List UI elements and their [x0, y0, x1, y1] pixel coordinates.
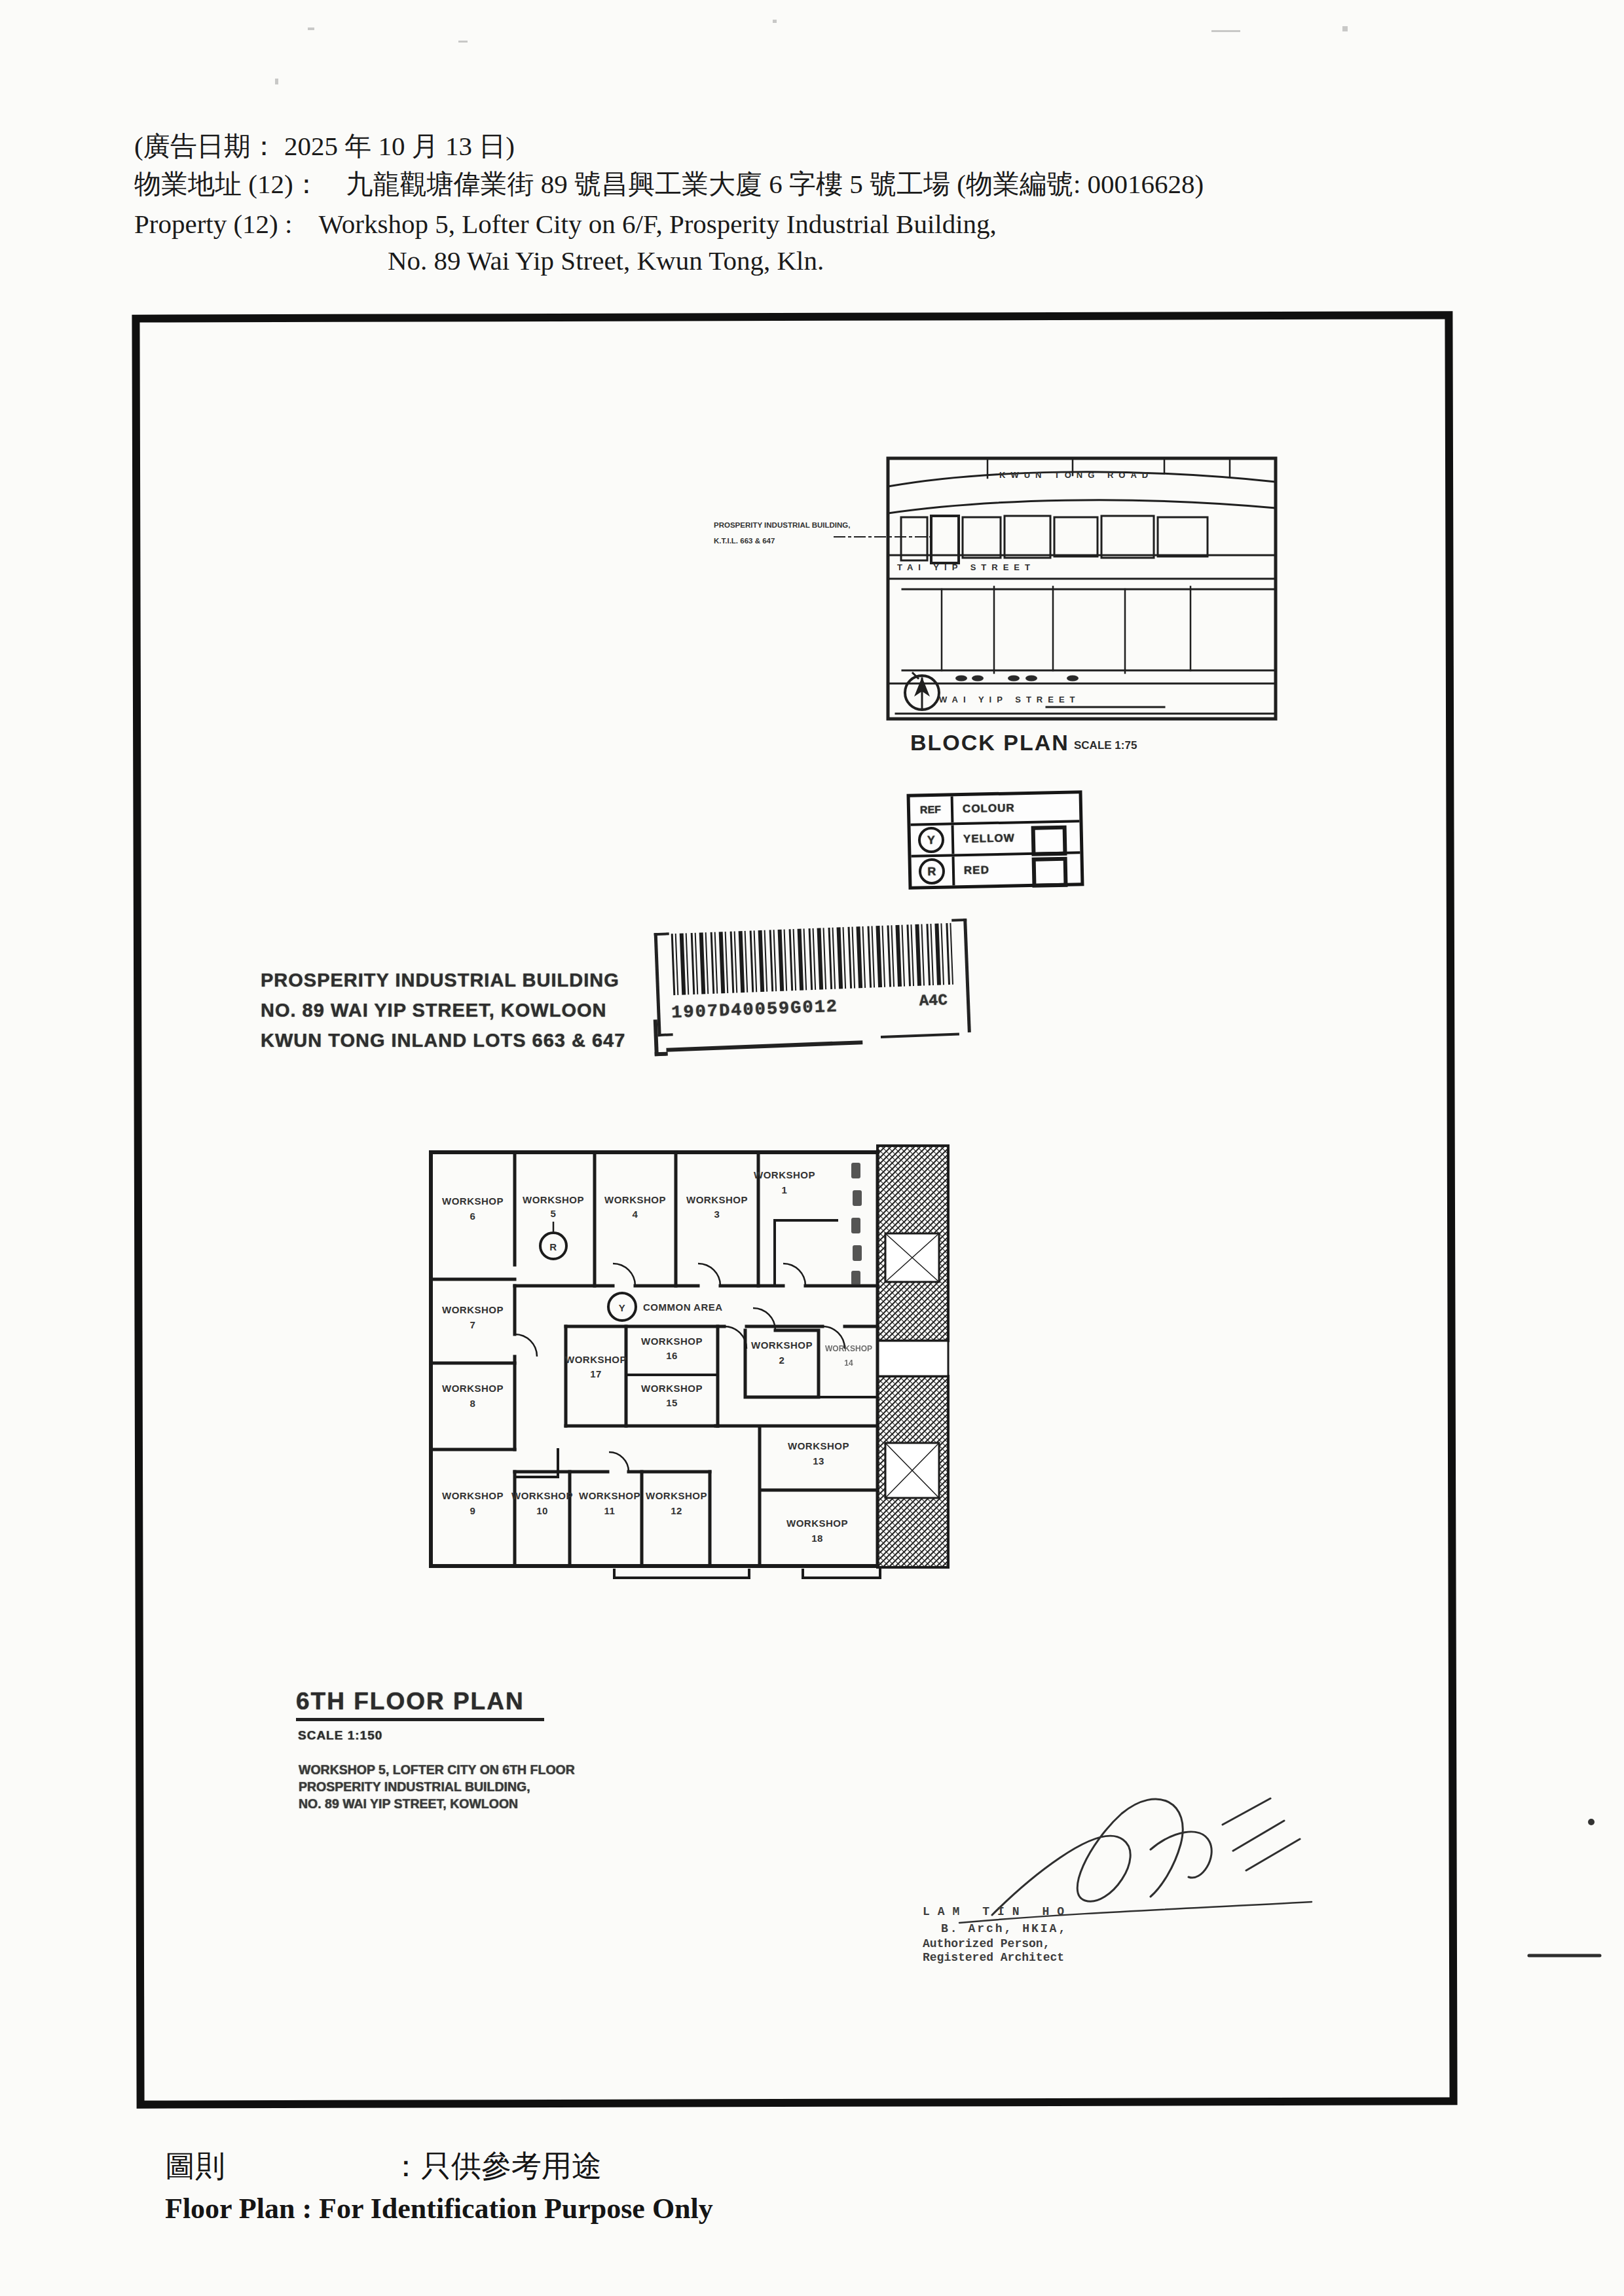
red-marker: R [540, 1222, 566, 1259]
workshop-14-number: 14 [844, 1358, 853, 1368]
workshop-14-label: WORKSHOP [825, 1344, 872, 1353]
signatory-name: LAM TIN HO [923, 1905, 1072, 1918]
signatory-qualification: B. Arch, HKIA, [941, 1922, 1067, 1935]
street-label-wai-yip-street: WAI YIP STREET [939, 695, 1080, 704]
floor-plan-scale: SCALE 1:150 [298, 1728, 382, 1743]
workshop-7-label: WORKSHOP [442, 1304, 504, 1315]
legend-row-yellow: Y YELLOW [910, 820, 1080, 854]
scan-speck [1342, 26, 1348, 31]
property-address-cn: 物業地址 (12)：九龍觀塘偉業街 89 號昌興工業大廈 6 字樓 5 號工場 … [134, 166, 1204, 202]
workshop-3-number: 3 [714, 1209, 720, 1220]
footer-cn-value: 只供參考用途 [421, 2149, 602, 2183]
room-labels: WORKSHOP 6 WORKSHOP 5 WORKSHOP 4 WORKSHO… [442, 1169, 872, 1544]
workshop-9-number: 9 [470, 1505, 476, 1516]
site-line-1: PROSPERITY INDUSTRIAL BUILDING [261, 965, 625, 995]
workshop-6-label: WORKSHOP [442, 1195, 504, 1207]
yellow-ref-circle: Y [918, 827, 945, 854]
block-plan-scale: SCALE 1:75 [1074, 739, 1137, 752]
yellow-marker: Y COMMON AREA [608, 1293, 723, 1321]
signatory-role-2: Registered Architect [923, 1951, 1064, 1964]
workshop-16-number: 16 [666, 1350, 678, 1361]
scan-speck [275, 79, 278, 84]
red-swatch [1032, 857, 1068, 888]
colour-legend-table: REF COLOUR Y YELLOW R RED [907, 790, 1084, 890]
block-plan-callout-line2: K.T.I.L. 663 & 647 [714, 537, 775, 545]
floor-plan-drawing: WORKSHOP 6 WORKSHOP 5 WORKSHOP 4 WORKSHO… [418, 1137, 963, 1603]
block-plan-title: BLOCK PLAN [910, 730, 1069, 755]
footer-en-line: Floor Plan : For Identification Purpose … [165, 2192, 713, 2225]
address-value-cn: 九龍觀塘偉業街 89 號昌興工業大廈 6 字樓 5 號工場 (物業編號: 000… [346, 169, 1204, 199]
scan-speck [1211, 30, 1240, 32]
site-address-stamp: PROSPERITY INDUSTRIAL BUILDING NO. 89 WA… [261, 965, 625, 1055]
workshop-2-number: 2 [779, 1355, 785, 1366]
footer-cn-colon: ： [391, 2149, 421, 2183]
document-page: { "header": { "date_line": "(廣告日期： 2025 … [0, 0, 1624, 2296]
barcode-sticker: 1907D40059G012 A4C [654, 919, 971, 1056]
workshop-3-label: WORKSHOP [686, 1194, 748, 1205]
ad-date-line: (廣告日期： 2025 年 10 月 13 日) [134, 128, 515, 164]
workshop-9-label: WORKSHOP [442, 1490, 504, 1501]
workshop-5-number: 5 [551, 1208, 557, 1219]
signature-block: LAM TIN HO B. Arch, HKIA, Authorized Per… [913, 1784, 1608, 1974]
workshop-13-label: WORKSHOP [788, 1440, 849, 1451]
site-line-3: KWUN TONG INLAND LOTS 663 & 647 [261, 1025, 625, 1055]
red-ref-circle: R [919, 858, 946, 885]
property-value-en: Workshop 5, Lofter City on 6/F, Prosperi… [318, 209, 996, 239]
workshop-16-label: WORKSHOP [641, 1336, 703, 1347]
scan-speck [773, 20, 777, 23]
illegible-marks [851, 1163, 862, 1285]
ink-dot [1588, 1819, 1595, 1825]
workshop-4-label: WORKSHOP [604, 1194, 666, 1205]
workshop-17-label: WORKSHOP [565, 1354, 627, 1365]
floor-plan-notes: WORKSHOP 5, LOFTER CITY ON 6TH FLOOR PRO… [299, 1761, 575, 1812]
street-label-tai-yip-street: TAI YIP STREET [897, 562, 1035, 572]
legend-row-red: R RED [911, 851, 1080, 886]
workshop-15-label: WORKSHOP [641, 1383, 703, 1394]
workshop-2-label: WORKSHOP [751, 1339, 813, 1351]
property-address-en-line2: No. 89 Wai Yip Street, Kwun Tong, Kln. [388, 245, 824, 276]
yellow-marker-letter: Y [619, 1302, 626, 1313]
workshop-10-label: WORKSHOP [511, 1490, 573, 1501]
scan-speck [308, 27, 314, 30]
legend-ref-header: REF [910, 796, 954, 823]
workshop-11-number: 11 [604, 1505, 616, 1516]
footer-cn-label: 圖則 [165, 2146, 391, 2187]
workshop-15-number: 15 [666, 1397, 678, 1408]
workshop-1-number: 1 [782, 1184, 788, 1195]
common-area-label: COMMON AREA [643, 1302, 723, 1313]
service-core-hatched [877, 1146, 948, 1567]
block-plan-drawing: PROSPERITY INDUSTRIAL BUILDING, K.T.I.L.… [706, 450, 1285, 769]
barcode-bracket-bottom [654, 1019, 668, 1057]
barcode-number: 1907D40059G012 [671, 997, 839, 1023]
workshop-12-number: 12 [671, 1505, 682, 1516]
workshop-18-number: 18 [811, 1533, 823, 1544]
note-line-2: PROSPERITY INDUSTRIAL BUILDING, [299, 1778, 575, 1795]
workshop-8-label: WORKSHOP [442, 1383, 504, 1394]
workshop-5-label: WORKSHOP [523, 1194, 584, 1205]
barcode-bars [671, 923, 953, 995]
property-address-en: Property (12) :Workshop 5, Lofter City o… [134, 208, 997, 240]
note-line-1: WORKSHOP 5, LOFTER CITY ON 6TH FLOOR [299, 1761, 575, 1778]
north-arrow-icon [905, 673, 939, 710]
legend-colour-header: COLOUR [953, 800, 1079, 816]
site-line-2: NO. 89 WAI YIP STREET, KOWLOON [261, 995, 625, 1025]
red-marker-letter: R [549, 1241, 557, 1252]
workshop-4-number: 4 [633, 1209, 638, 1220]
scan-speck [458, 41, 468, 43]
workshop-8-number: 8 [470, 1398, 476, 1409]
property-label-en: Property (12) : [134, 209, 292, 239]
workshop-10-number: 10 [536, 1505, 548, 1516]
footer-cn-line: 圖則：只供參考用途 [165, 2146, 602, 2187]
address-label-cn: 物業地址 (12)： [134, 169, 320, 199]
workshop-12-label: WORKSHOP [646, 1490, 707, 1501]
note-line-3: NO. 89 WAI YIP STREET, KOWLOON [299, 1795, 575, 1812]
workshop-17-number: 17 [590, 1368, 602, 1379]
workshop-7-number: 7 [470, 1319, 476, 1330]
workshop-1-label: WORKSHOP [754, 1169, 815, 1180]
signatory-role-1: Authorized Person, [923, 1937, 1050, 1950]
barcode-smudge-line2 [881, 1032, 959, 1038]
workshop-13-number: 13 [813, 1455, 824, 1467]
workshop-18-label: WORKSHOP [786, 1518, 848, 1529]
workshop-11-label: WORKSHOP [579, 1490, 640, 1501]
barcode-suffix: A4C [919, 991, 948, 1010]
legend-header-row: REF COLOUR [910, 793, 1080, 823]
workshop-6-number: 6 [470, 1211, 476, 1222]
floor-plan-walls [431, 1152, 880, 1578]
block-plan-callout-line1: PROSPERITY INDUSTRIAL BUILDING, [714, 521, 851, 529]
floor-plan-title: 6TH FLOOR PLAN [296, 1688, 544, 1721]
street-label-kwun-tong-road: KWUN TONG ROAD [999, 470, 1153, 480]
